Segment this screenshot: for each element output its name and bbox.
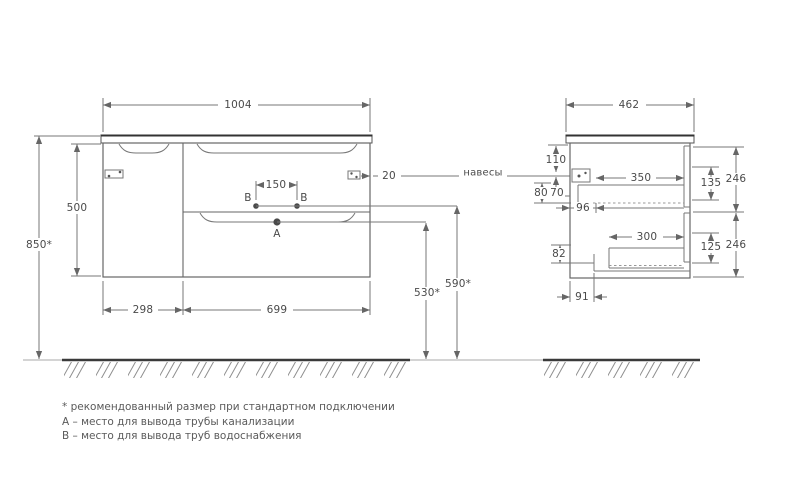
hanger-icon-right — [348, 171, 360, 179]
dim-notch-height: 82 — [552, 248, 566, 260]
note-point-a: А – место для вывода трубы канализации — [62, 415, 395, 430]
note-point-b: В – место для вывода труб водоснабжения — [62, 429, 395, 444]
label-b-left: B — [244, 192, 251, 204]
dim-supply-height: 590* — [445, 278, 471, 290]
dim-offset-80: 80 — [534, 187, 548, 199]
dim-drawer-width: 699 — [267, 304, 288, 316]
dim-front-height: 500 — [67, 202, 88, 214]
hanger-icon-left — [105, 170, 123, 178]
dim-drawer1-front: 246 — [726, 173, 747, 185]
dim-drawer2-opening: 125 — [701, 241, 722, 253]
note-recommended-size: * рекомендованный размер при стандартном… — [62, 400, 395, 415]
callout-hangers: навесы — [463, 168, 502, 179]
dim-mount-height: 850* — [26, 239, 52, 251]
hanger-icon-side — [572, 169, 590, 182]
dim-notch-depth: 91 — [575, 291, 589, 303]
dim-front-width: 1004 — [224, 99, 252, 111]
dim-top-offset: 110 — [546, 154, 567, 166]
dim-drawer2-front: 246 — [726, 239, 747, 251]
dim-depth: 462 — [619, 99, 640, 111]
dim-door-width: 298 — [133, 304, 154, 316]
dim-hanger-inset: 20 — [382, 170, 396, 182]
floor-hatch-side — [543, 362, 700, 378]
floor-hatch-front — [63, 362, 410, 378]
floor — [23, 360, 700, 378]
drawing-canvas: B B A 1004 850* 500 298 699 150 — [0, 0, 800, 479]
footnotes: * рекомендованный размер при стандартном… — [62, 400, 395, 444]
dim-drawer1-depth: 350 — [631, 172, 652, 184]
dim-outlet-spacing: 150 — [266, 179, 287, 191]
dim-drain-height: 530* — [414, 287, 440, 299]
front-carcass — [103, 143, 370, 277]
dim-drawer2-depth: 300 — [637, 231, 658, 243]
label-b-right: B — [300, 192, 307, 204]
label-a: A — [273, 228, 281, 240]
dim-drawer1-opening: 135 — [701, 177, 722, 189]
dim-hanger-depth: 96 — [576, 202, 590, 214]
dim-offset-70: 70 — [550, 187, 564, 199]
